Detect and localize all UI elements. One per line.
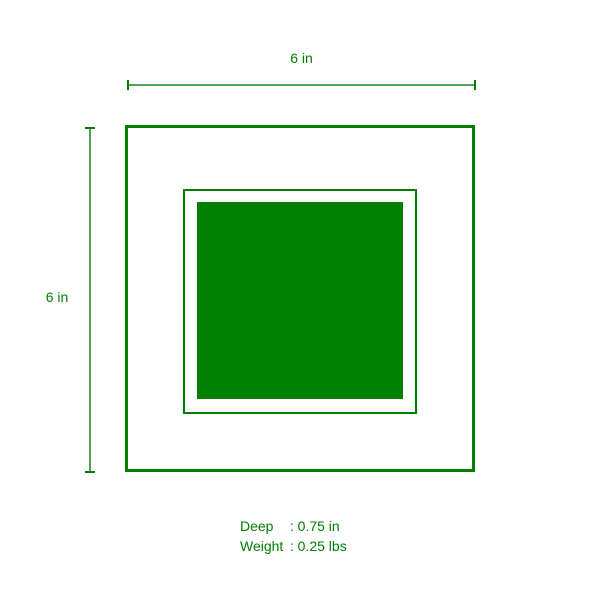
left-dimension-line <box>89 128 91 473</box>
top-dimension-line <box>128 84 475 86</box>
spec-label-weight: Weight <box>240 536 286 556</box>
spec-list: Deep : 0.75 in Weight : 0.25 lbs <box>240 516 347 556</box>
left-dimension-tick-top <box>85 127 95 129</box>
spec-row-weight: Weight : 0.25 lbs <box>240 536 347 556</box>
spec-label-deep: Deep <box>240 516 286 536</box>
spec-value-weight: : 0.25 lbs <box>290 536 347 556</box>
spec-row-deep: Deep : 0.75 in <box>240 516 347 536</box>
inner-filled-square <box>197 202 403 399</box>
top-dimension-tick-right <box>474 80 476 90</box>
product-dimension-diagram: 6 in 6 in Deep : 0.75 in Weight : 0.25 l… <box>0 0 600 600</box>
top-dimension-tick-left <box>127 80 129 90</box>
spec-value-deep: : 0.75 in <box>290 516 340 536</box>
top-width-dimension-label: 6 in <box>128 50 475 66</box>
left-height-dimension-label: 6 in <box>37 289 77 305</box>
left-dimension-tick-bottom <box>85 471 95 473</box>
